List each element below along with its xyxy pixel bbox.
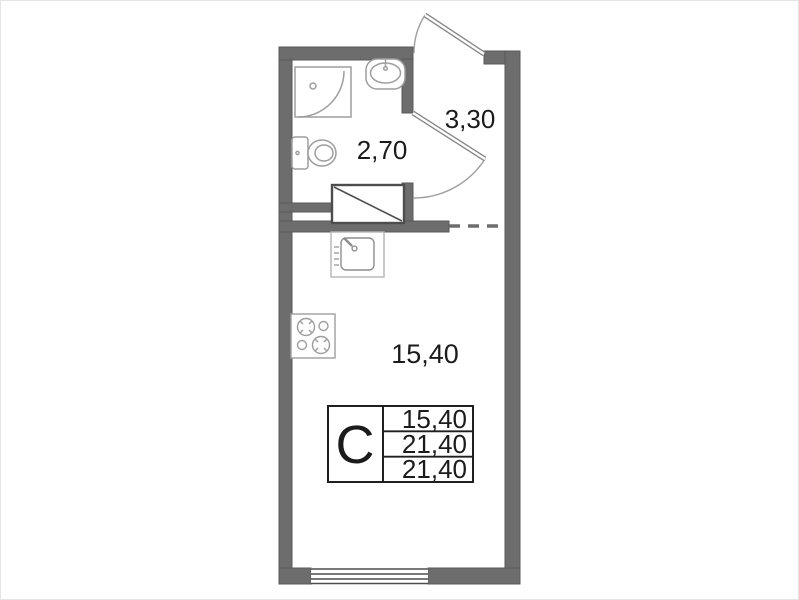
floor-plan: 2,70 3,30 15,40 С 15,40 21,40 21,40 xyxy=(1,1,799,600)
entry-door xyxy=(414,15,484,54)
wall-right xyxy=(505,51,520,584)
main-room-area-label: 15,40 xyxy=(391,339,459,369)
wardrobe xyxy=(332,185,404,223)
wall-bathroom-bottom-stub xyxy=(279,203,332,212)
hallway-area-label: 3,30 xyxy=(445,104,496,134)
shower-tray xyxy=(295,67,351,117)
area-table: С 15,40 21,40 21,40 xyxy=(328,404,473,484)
bathroom-area-label: 2,70 xyxy=(357,135,408,165)
kitchen-sink xyxy=(331,232,384,277)
table-value-total-reduced: 21,40 xyxy=(402,454,467,484)
wall-bottom-left xyxy=(279,568,311,584)
bathroom-door-swing-arc xyxy=(413,159,485,198)
toilet xyxy=(292,137,336,169)
bathroom-sink xyxy=(366,58,405,89)
stove xyxy=(291,314,335,358)
wall-bottom-right xyxy=(428,568,520,584)
wall-left xyxy=(279,47,292,584)
wall-top-bathroom xyxy=(279,47,413,60)
toilet-tank xyxy=(292,137,308,169)
unit-type-label: С xyxy=(336,415,375,475)
window xyxy=(311,568,428,584)
entry-door-swing-arc xyxy=(414,15,425,53)
floor-plan-page: 2,70 3,30 15,40 С 15,40 21,40 21,40 xyxy=(0,0,799,600)
toilet-bowl xyxy=(308,140,336,166)
